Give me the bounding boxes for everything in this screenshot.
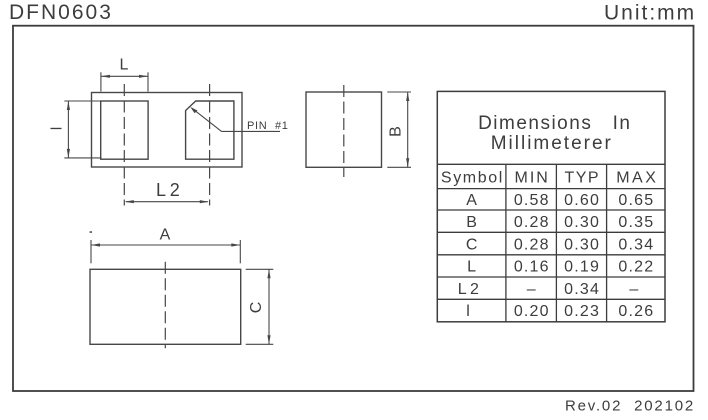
svg-text:0.22: 0.22 (618, 259, 654, 276)
svg-text:TYP: TYP (564, 170, 600, 187)
svg-text:B: B (466, 214, 477, 231)
svg-text:C: C (466, 236, 478, 253)
svg-text:0.28: 0.28 (514, 214, 550, 231)
svg-text:MAX: MAX (616, 170, 658, 187)
svg-text:Millimeterer: Millimeterer (491, 133, 613, 154)
svg-text:Rev.02 202102: Rev.02 202102 (565, 398, 695, 415)
svg-text:PIN #1: PIN #1 (247, 120, 289, 132)
svg-text:l: l (49, 127, 66, 130)
svg-text:Dimensions In: Dimensions In (478, 113, 631, 134)
svg-text:0.60: 0.60 (564, 192, 600, 209)
svg-text:2: 2 (470, 281, 479, 298)
svg-text:0.34: 0.34 (618, 236, 654, 253)
svg-text:0.28: 0.28 (514, 236, 550, 253)
svg-text:Symbol: Symbol (441, 170, 504, 187)
svg-text:DFN0603: DFN0603 (9, 1, 113, 24)
svg-text:L: L (156, 180, 166, 200)
svg-text:–: – (629, 281, 638, 298)
svg-text:0.30: 0.30 (564, 236, 600, 253)
svg-text:l: l (466, 303, 470, 320)
svg-text:A: A (466, 192, 477, 209)
svg-text:C: C (248, 302, 265, 314)
svg-text:–: – (527, 281, 536, 298)
svg-text:A: A (160, 227, 171, 244)
svg-text:0.26: 0.26 (618, 303, 654, 320)
svg-text:2: 2 (170, 180, 180, 200)
svg-text:0.16: 0.16 (514, 259, 550, 276)
svg-text:0.20: 0.20 (514, 303, 550, 320)
svg-text:B: B (388, 126, 405, 137)
svg-text:0.58: 0.58 (514, 192, 550, 209)
svg-text:L: L (458, 281, 467, 298)
svg-text:0.65: 0.65 (618, 192, 654, 209)
svg-text:L: L (120, 57, 129, 74)
svg-text:0.34: 0.34 (564, 281, 600, 298)
svg-text:0.19: 0.19 (564, 259, 600, 276)
svg-text:0.35: 0.35 (618, 214, 654, 231)
svg-text:0.23: 0.23 (564, 303, 600, 320)
svg-text:L: L (467, 259, 476, 276)
svg-text:0.30: 0.30 (564, 214, 600, 231)
svg-text:Unit:mm: Unit:mm (604, 2, 696, 25)
svg-text:MIN: MIN (515, 170, 550, 187)
